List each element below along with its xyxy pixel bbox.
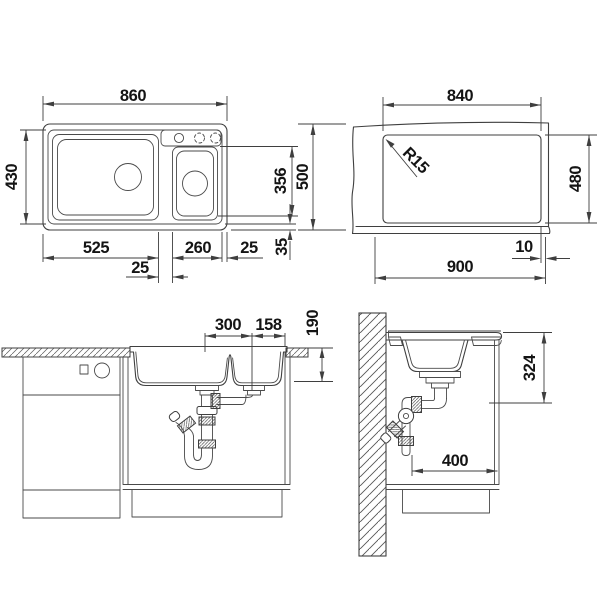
dim-190: 190 [304, 310, 322, 337]
main-bowl-drain [115, 164, 142, 191]
worktop-profile [386, 333, 502, 341]
sink-plan-geometry [43, 124, 227, 230]
cutout-geometry [352, 122, 550, 233]
drain-body [426, 378, 454, 384]
sink-rim-inner [48, 130, 222, 224]
rim-edge-left [389, 331, 403, 346]
main-bowl-wall [136, 352, 228, 383]
dim-r15: R15 [399, 144, 432, 177]
half-bowl-drain [183, 171, 208, 196]
dim-400: 400 [442, 452, 469, 470]
half-bowl-rim [173, 147, 218, 220]
dim-356: 356 [272, 168, 290, 195]
side-section-view: 324 400 [359, 313, 552, 556]
radius-arrow [386, 139, 395, 148]
dim-480: 480 [567, 166, 585, 193]
cabinet-side [386, 340, 499, 513]
drain-flange [420, 372, 461, 378]
rim-edge-right [472, 337, 502, 346]
dim-25-divider: 25 [131, 259, 149, 277]
worktop-section-right [286, 348, 308, 357]
dim-10: 10 [515, 238, 533, 256]
pipe-flange [398, 408, 413, 423]
main-bowl-rim [53, 135, 159, 221]
front-plumbing [168, 394, 252, 470]
dim-158: 158 [255, 316, 282, 334]
dim-25-edge: 25 [240, 239, 258, 257]
half-bowl-wall [233, 352, 281, 383]
cabinet-switch [80, 365, 88, 374]
sink-profile [130, 347, 287, 386]
dim-324: 324 [521, 354, 539, 382]
drain-outlet [432, 383, 449, 388]
wall-section [359, 313, 386, 556]
worktop-section-left [2, 348, 130, 357]
tap-hole [174, 133, 183, 142]
front-section-view: 300 158 190 [2, 310, 333, 518]
optional-tap-hole-2 [211, 133, 221, 143]
half-drain-flange [244, 386, 265, 391]
pipe-elbow [422, 399, 447, 409]
optional-tap-hole-1 [195, 133, 205, 143]
pipe-nut [412, 397, 422, 413]
pipe-nut [199, 440, 216, 448]
worktop-cutout-view: R15 840 480 10 900 [352, 87, 597, 284]
worktop-break-line [352, 127, 354, 234]
dim-840: 840 [447, 87, 474, 105]
sink-cabinet [123, 352, 290, 517]
sink-top-view: 860 430 356 500 525 260 25 25 [3, 87, 346, 283]
half-drain-body [248, 391, 261, 396]
drawing-canvas: 860 430 356 500 525 260 25 25 [0, 0, 600, 600]
dim-300: 300 [215, 316, 242, 334]
cabinet-knob [95, 363, 110, 378]
main-bowl-inner [58, 140, 154, 216]
dim-500: 500 [294, 164, 312, 191]
worktop-front-edge [353, 227, 550, 234]
sink-plan-dimensions: 860 430 356 500 525 260 25 25 [3, 87, 346, 283]
left-cabinet [23, 357, 120, 518]
dim-525: 525 [83, 239, 110, 257]
connecting-pipe [217, 395, 253, 405]
dim-900: 900 [447, 258, 474, 276]
dim-430: 430 [3, 164, 21, 191]
front-dimensions: 300 158 190 [205, 310, 333, 390]
pipe-nut [211, 394, 220, 409]
main-drain-flange [196, 386, 219, 391]
front-cabinet [2, 348, 308, 518]
sink-technical-drawing: 860 430 356 500 525 260 25 25 [0, 0, 600, 600]
bowl-inner-wall [406, 340, 465, 368]
side-plumbing [380, 388, 447, 456]
pipe-nut [177, 416, 195, 433]
drain-pipe [435, 388, 447, 399]
dim-35: 35 [273, 238, 291, 256]
pipe-nut [199, 417, 215, 425]
inlet-stub [168, 410, 181, 422]
front-sink-section [130, 347, 287, 396]
bowl-outer-wall [402, 340, 468, 372]
dim-860: 860 [120, 87, 147, 105]
tap-ledge [161, 130, 221, 146]
side-dimensions: 324 400 [412, 333, 552, 477]
dim-260: 260 [185, 239, 212, 257]
cutout-dimensions: R15 840 480 10 900 [375, 87, 597, 284]
pipe-nut [399, 437, 414, 446]
